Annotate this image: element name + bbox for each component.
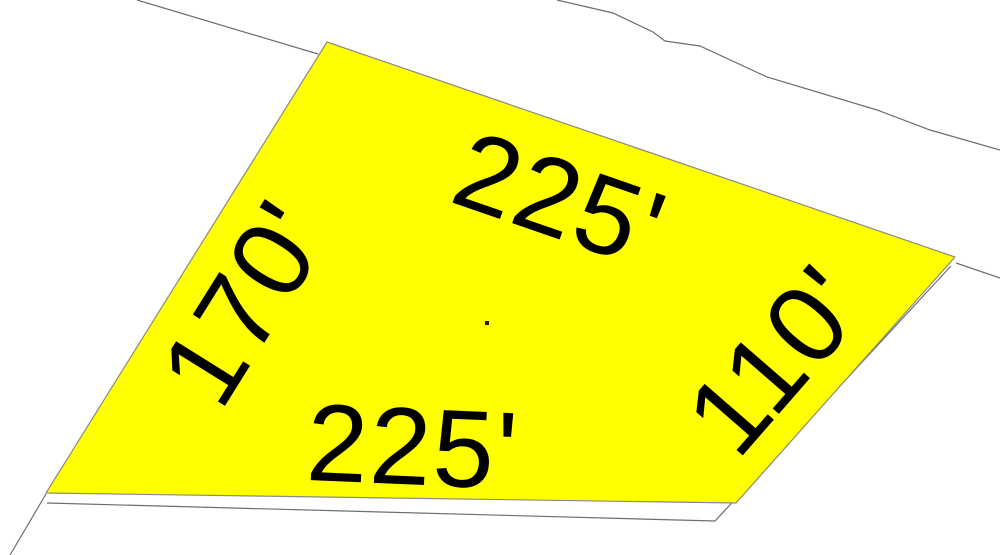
dimension-label-bottom: 225': [304, 381, 522, 513]
parcel-map: 225' 170' 110' 225': [0, 0, 1000, 555]
map-canvas: 225' 170' 110' 225': [0, 0, 1000, 555]
boundary-line-upper-left: [137, 0, 318, 54]
boundary-line-upper: [557, 0, 1000, 150]
parcel-centroid-dot: [485, 321, 489, 325]
boundary-line-lower-left: [10, 494, 46, 555]
boundary-line-right-corner: [956, 263, 1000, 278]
